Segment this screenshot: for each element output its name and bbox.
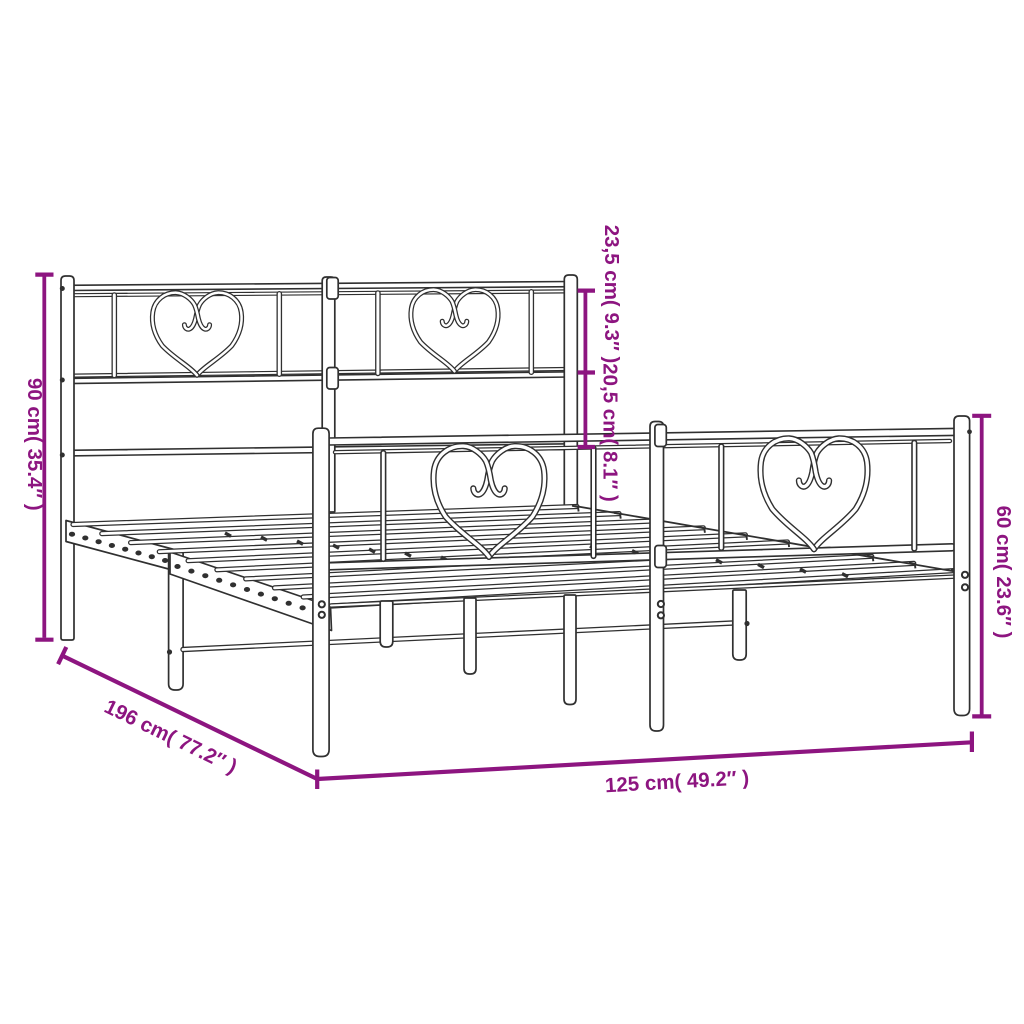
svg-text:20,5 cm( 8.1″ ): 20,5 cm( 8.1″ ): [599, 363, 622, 502]
svg-text:60 cm( 23.6″ ): 60 cm( 23.6″ ): [992, 506, 1015, 639]
svg-text:23,5 cm( 9.3″ ): 23,5 cm( 9.3″ ): [600, 225, 623, 364]
svg-text:90 cm( 35.4″ ): 90 cm( 35.4″ ): [23, 378, 46, 511]
